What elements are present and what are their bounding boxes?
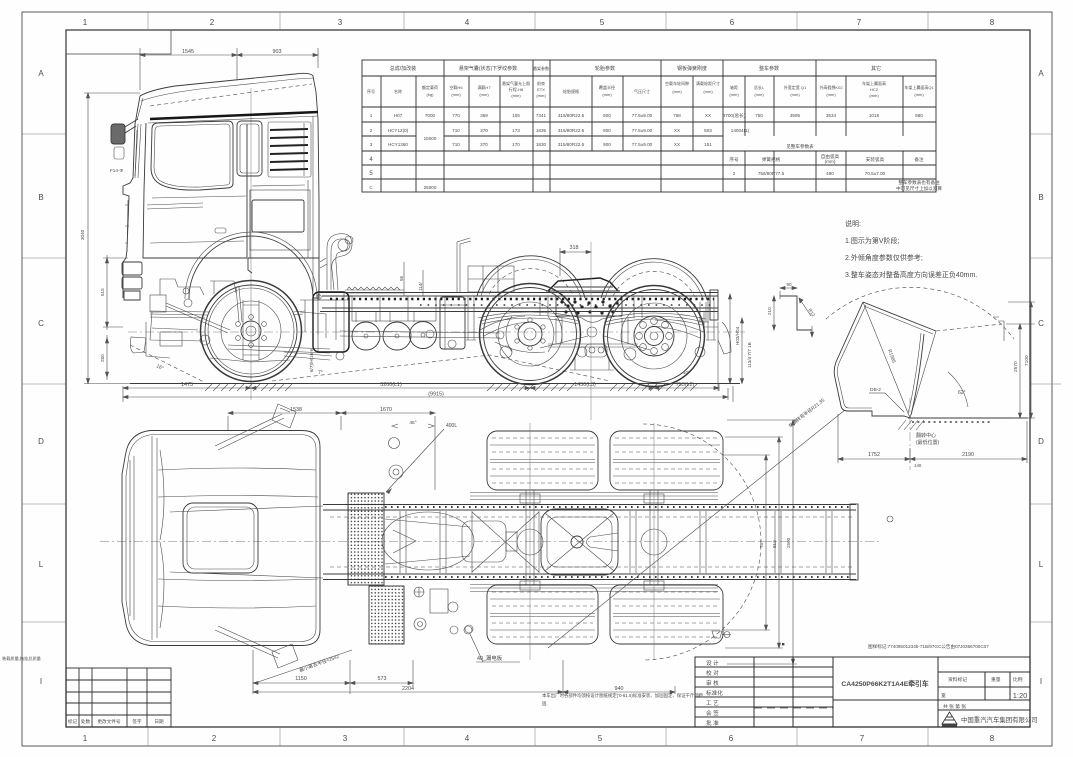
svg-text:1545: 1545 <box>182 49 194 55</box>
svg-text:L: L <box>39 560 44 569</box>
svg-text:其它: 其它 <box>871 65 881 72</box>
svg-text:3: 3 <box>370 142 373 147</box>
svg-text:整车参数表也有备注: 整车参数表也有备注 <box>898 179 940 186</box>
svg-text:1752: 1752 <box>868 452 880 458</box>
svg-text:行程-H8: 行程-H8 <box>509 86 524 92</box>
svg-text:C: C <box>38 319 44 328</box>
svg-text:7: 7 <box>860 734 865 743</box>
svg-text:覆盖半径: 覆盖半径 <box>599 84 615 90</box>
svg-text:7000: 7000 <box>425 113 436 118</box>
svg-text:3: 3 <box>343 734 348 743</box>
svg-text:(mm): (mm) <box>703 89 713 94</box>
svg-text:1475: 1475 <box>181 382 193 388</box>
svg-text:悬架气囊允上限: 悬架气囊允上限 <box>502 80 530 86</box>
svg-text:批 准: 批 准 <box>706 719 719 727</box>
svg-text:10°: 10° <box>683 370 690 375</box>
svg-text:C: C <box>1038 319 1044 328</box>
svg-text:900: 900 <box>603 142 611 147</box>
svg-text:签字: 签字 <box>132 718 142 724</box>
svg-text:满载轮距尺寸: 满载轮距尺寸 <box>696 80 720 86</box>
svg-text:940: 940 <box>615 686 624 692</box>
svg-text:HCY12(0): HCY12(0) <box>388 128 409 133</box>
svg-text:400L: 400L <box>446 423 457 429</box>
svg-text:7°: 7° <box>318 370 323 376</box>
svg-text:(mm): (mm) <box>672 89 682 94</box>
svg-text:768: 768 <box>673 113 681 118</box>
svg-text:770: 770 <box>452 113 460 118</box>
svg-text:气压尺寸: 气压尺寸 <box>634 88 650 94</box>
svg-text:753(L2): 753(L2) <box>676 382 695 388</box>
svg-text:173: 173 <box>512 128 520 133</box>
svg-text:(mm): (mm) <box>826 92 836 97</box>
svg-text:额定载荷: 额定载荷 <box>422 84 438 90</box>
svg-text:(mm): (mm) <box>869 93 879 98</box>
svg-text:3595: 3595 <box>790 113 801 118</box>
svg-text:L: L <box>1039 560 1044 569</box>
svg-text:750: 750 <box>755 113 763 118</box>
svg-text:90: 90 <box>786 282 792 287</box>
svg-text:HCY1360: HCY1360 <box>388 142 408 147</box>
svg-text:序号: 序号 <box>729 156 739 163</box>
svg-text:见整车参数表: 见整车参数表 <box>786 143 814 150</box>
svg-text:370: 370 <box>480 128 488 133</box>
svg-text:CA4250P66K2T1A4E牵引车: CA4250P66K2T1A4E牵引车 <box>841 679 928 688</box>
svg-text:共 张 第 张: 共 张 第 张 <box>943 703 966 710</box>
svg-text:轮胎参数: 轮胎参数 <box>595 65 615 72</box>
svg-text:7100: 7100 <box>1024 355 1030 366</box>
svg-text:2570: 2570 <box>1013 361 1019 372</box>
svg-text:55: 55 <box>399 275 404 281</box>
svg-text:1450(L3): 1450(L3) <box>574 382 596 388</box>
svg-text:中国重汽汽车集团有限公司: 中国重汽汽车集团有限公司 <box>961 715 1038 724</box>
svg-text:151: 151 <box>704 142 712 147</box>
svg-text:重量: 重量 <box>991 676 1001 683</box>
svg-text:序号: 序号 <box>367 88 375 94</box>
svg-text:悬架气囊(状态)下罗纹参数: 悬架气囊(状态)下罗纹参数 <box>459 65 517 72</box>
svg-text:B: B <box>1038 193 1043 202</box>
svg-text:轴距: 轴距 <box>730 84 738 90</box>
svg-text:说明:: 说明: <box>845 219 861 228</box>
svg-text:6: 6 <box>729 734 734 743</box>
svg-text:2: 2 <box>210 18 215 27</box>
svg-text:2: 2 <box>733 171 736 176</box>
svg-text:(9915): (9915) <box>428 392 444 398</box>
svg-text:会 签: 会 签 <box>706 709 719 717</box>
svg-text:280: 280 <box>100 354 105 362</box>
svg-text:外宽定宽 Q1: 外宽定宽 Q1 <box>784 84 807 90</box>
svg-text:设 计: 设 计 <box>706 659 719 667</box>
svg-text:A: A <box>38 69 44 78</box>
svg-text:210: 210 <box>767 307 772 315</box>
svg-text:900: 900 <box>603 128 611 133</box>
svg-text:62°: 62° <box>958 390 966 396</box>
svg-text:(mm): (mm) <box>790 92 800 97</box>
svg-text:710: 710 <box>452 128 460 133</box>
svg-text:315/80R22.5: 315/80R22.5 <box>558 128 585 133</box>
svg-text:2190: 2190 <box>962 452 974 458</box>
svg-text:710: 710 <box>452 142 460 147</box>
svg-text:5: 5 <box>600 18 605 27</box>
svg-text:8: 8 <box>990 734 995 743</box>
svg-text:总长L: 总长L <box>754 84 765 90</box>
svg-text:翻转中心: 翻转中心 <box>916 432 936 439</box>
svg-text:1835: 1835 <box>536 128 547 133</box>
svg-text:5: 5 <box>598 734 603 743</box>
svg-text:140: 140 <box>914 463 922 468</box>
svg-text:980: 980 <box>915 113 923 118</box>
svg-text:XX: XX <box>674 142 680 147</box>
svg-text:1: 1 <box>83 734 88 743</box>
svg-text:备注: 备注 <box>914 156 924 163</box>
svg-text:170: 170 <box>512 142 520 147</box>
svg-text:(mm): (mm) <box>451 92 461 97</box>
svg-text:(最低位置): (最低位置) <box>916 439 940 446</box>
svg-text:2: 2 <box>212 734 217 743</box>
svg-text:整车参数: 整车参数 <box>759 65 779 72</box>
svg-text:(mm): (mm) <box>914 92 924 97</box>
svg-text:H03/H04: H03/H04 <box>735 326 740 345</box>
svg-text:空载H6: 空载H6 <box>449 84 463 90</box>
svg-text:(mm): (mm) <box>602 92 612 97</box>
svg-text:14004(1): 14004(1) <box>731 128 750 133</box>
svg-text:1: 1 <box>370 113 373 118</box>
svg-text:2204: 2204 <box>402 686 414 692</box>
svg-text:(mm): (mm) <box>754 92 764 97</box>
svg-text:I: I <box>1040 677 1042 686</box>
svg-text:2.外倾角度参数仅供参考;: 2.外倾角度参数仅供参考; <box>845 253 923 262</box>
svg-text:轮胎规格: 轮胎规格 <box>563 88 579 94</box>
svg-text:悬架参数: 悬架参数 <box>533 65 549 71</box>
svg-text:比例: 比例 <box>1013 676 1023 683</box>
svg-text:3534: 3534 <box>826 113 837 118</box>
svg-text:1538: 1538 <box>290 407 302 413</box>
svg-text:1670: 1670 <box>380 407 392 413</box>
svg-text:3700(总长): 3700(总长) <box>723 112 746 119</box>
svg-text:114/: 114/ <box>418 282 423 291</box>
svg-text:480: 480 <box>826 171 834 176</box>
svg-text:1: 1 <box>83 18 88 27</box>
svg-text:787: 787 <box>759 540 764 548</box>
svg-text:813: 813 <box>772 540 777 548</box>
svg-text:处数: 处数 <box>81 718 91 725</box>
svg-text:903: 903 <box>273 49 282 55</box>
svg-text:中可见尺寸上加以测算: 中可见尺寸上加以测算 <box>896 185 942 192</box>
svg-text:1018: 1018 <box>869 113 880 118</box>
svg-text:370: 370 <box>480 142 488 147</box>
svg-text:HC2: HC2 <box>870 87 879 92</box>
svg-text:(mm): (mm) <box>511 93 521 98</box>
svg-text:XX: XX <box>705 113 711 118</box>
svg-text:113/4 7/7 1B: 113/4 7/7 1B <box>747 342 752 368</box>
svg-text:315/80R22.5: 315/80R22.5 <box>558 142 585 147</box>
svg-text:I: I <box>40 677 42 686</box>
svg-text:F14-Φ: F14-Φ <box>110 168 123 173</box>
svg-text:1:20: 1:20 <box>1013 691 1028 700</box>
svg-text:A: A <box>1038 69 1044 78</box>
svg-text:6: 6 <box>730 18 735 27</box>
svg-text:3040: 3040 <box>80 229 85 240</box>
svg-text:2500: 2500 <box>786 537 791 548</box>
svg-text:车架上翼面高: 车架上翼面高 <box>862 80 886 86</box>
svg-text:70.5±7.00: 70.5±7.00 <box>865 171 886 176</box>
svg-text:D: D <box>1038 437 1044 446</box>
svg-text:1.图示为第V阶段;: 1.图示为第V阶段; <box>845 236 900 245</box>
svg-text:45°: 45° <box>409 420 416 426</box>
svg-text:满载H7: 满载H7 <box>477 84 491 90</box>
svg-text:3.整车姿态对整备高度方向误差正负40mm.: 3.整车姿态对整备高度方向误差正负40mm. <box>845 270 977 279</box>
svg-text:名称: 名称 <box>394 88 402 94</box>
svg-text:更改文件号: 更改文件号 <box>98 718 121 725</box>
svg-text:外高假想K02: 外高假想K02 <box>819 84 843 90</box>
svg-text:车架上翼面高Q1: 车架上翼面高Q1 <box>904 84 934 90</box>
svg-text:H07: H07 <box>394 113 403 118</box>
svg-text:标准化: 标准化 <box>706 689 723 697</box>
svg-text:审 核: 审 核 <box>706 679 719 687</box>
svg-text:标记: 标记 <box>68 718 78 725</box>
svg-text:前束: 前束 <box>537 80 545 86</box>
svg-text:工 艺: 工 艺 <box>706 700 719 707</box>
svg-text:756/80R77.5: 756/80R77.5 <box>758 171 785 176</box>
svg-text:359: 359 <box>480 113 488 118</box>
svg-text:校 对: 校 对 <box>706 669 719 677</box>
svg-text:D: D <box>38 437 44 446</box>
svg-text:图样标记:77409501234b-71B/97GC公告由0: 图样标记:77409501234b-71B/97GC公告由07J0366700C… <box>868 643 989 650</box>
svg-text:6/7)/H(16-5: 6/7)/H(16-5 <box>309 348 314 372</box>
svg-text:515: 515 <box>100 288 105 296</box>
svg-text:900: 900 <box>603 113 611 118</box>
svg-text:(mm): (mm) <box>479 92 489 97</box>
svg-text:(kg): (kg) <box>427 92 435 97</box>
svg-text:(mm): (mm) <box>729 92 739 97</box>
svg-text:77.5±9.00: 77.5±9.00 <box>632 128 653 133</box>
svg-text:宽: 宽 <box>941 692 946 699</box>
svg-text:本车出厂时各部件均须按设计图纸规定('0-61.5)标准安装: 本车出厂时各部件均须按设计图纸规定('0-61.5)标准安装、加固固定、保证千斤… <box>542 692 704 699</box>
svg-text:7341: 7341 <box>536 113 547 118</box>
svg-text:(mm): (mm) <box>825 159 836 164</box>
svg-text:25000: 25000 <box>424 185 437 190</box>
svg-text:15000: 15000 <box>424 136 437 141</box>
svg-text:503: 503 <box>704 128 712 133</box>
svg-text:77.5±9.00: 77.5±9.00 <box>632 113 653 118</box>
svg-text:2: 2 <box>370 128 373 133</box>
svg-text:ETX: ETX <box>537 87 545 92</box>
svg-text:4: 4 <box>465 18 470 27</box>
svg-text:空载车轮间隙: 空载车轮间隙 <box>665 80 689 86</box>
svg-text:3: 3 <box>338 18 343 27</box>
svg-text:装载质量,拖挂总质量: 装载质量,拖挂总质量 <box>2 655 41 662</box>
svg-text:315/80R22.5: 315/80R22.5 <box>558 113 585 118</box>
svg-text:1830: 1830 <box>536 142 547 147</box>
svg-text:钢板弹簧刚度: 钢板弹簧刚度 <box>677 65 707 72</box>
svg-text:DB-2: DB-2 <box>870 387 881 393</box>
svg-text:(mm): (mm) <box>536 93 546 98</box>
svg-text:4: 4 <box>465 734 470 743</box>
svg-text:3200(L1): 3200(L1) <box>380 382 402 388</box>
svg-text:资料标记: 资料标记 <box>948 676 967 683</box>
svg-text:573: 573 <box>378 676 387 682</box>
svg-text:安装弧高: 安装弧高 <box>866 156 885 163</box>
svg-text:总成/加改装: 总成/加改装 <box>390 65 416 72</box>
svg-text:318: 318 <box>570 245 579 251</box>
svg-text:7: 7 <box>857 18 862 27</box>
svg-text:1150: 1150 <box>295 676 307 682</box>
svg-text:77.5±9.00: 77.5±9.00 <box>632 142 653 147</box>
svg-text:8: 8 <box>990 18 995 27</box>
svg-text:B: B <box>38 193 43 202</box>
svg-text:弹簧规格: 弹簧规格 <box>762 156 781 163</box>
svg-text:XX: XX <box>674 128 680 133</box>
svg-text:105: 105 <box>512 113 520 118</box>
